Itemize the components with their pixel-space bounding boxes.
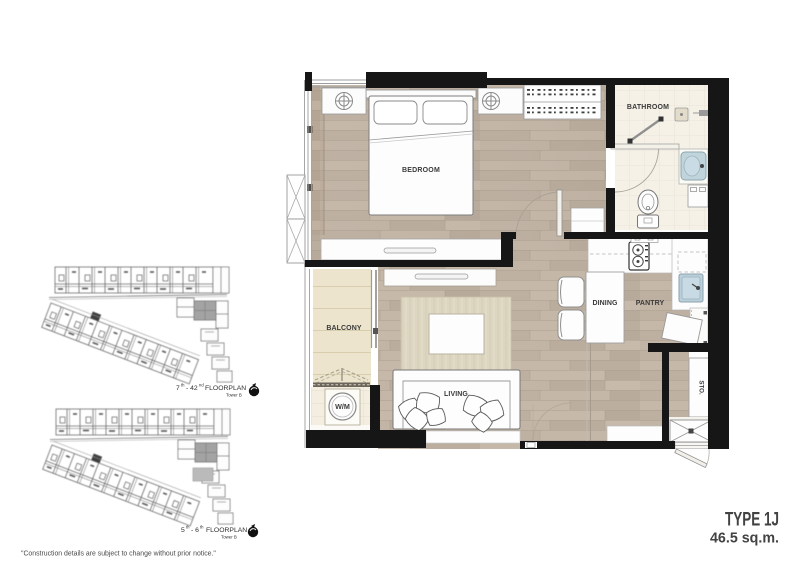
svg-text:5: 5 xyxy=(181,527,185,534)
svg-text:- 6: - 6 xyxy=(191,527,199,534)
svg-text:PANTRY: PANTRY xyxy=(636,300,665,307)
svg-text:W/M: W/M xyxy=(335,402,350,411)
svg-text:7: 7 xyxy=(176,385,180,392)
svg-text:BATHROOM: BATHROOM xyxy=(627,104,669,111)
svg-text:STO.: STO. xyxy=(698,380,705,395)
svg-text:FLOORPLAN: FLOORPLAN xyxy=(206,527,247,534)
svg-text:TYPE 1J: TYPE 1J xyxy=(725,510,779,531)
svg-text:"Construction details are subj: "Construction details are subject to cha… xyxy=(21,551,216,558)
svg-text:FLOORPLAN: FLOORPLAN xyxy=(205,385,246,392)
svg-text:nd: nd xyxy=(199,383,204,388)
svg-text:46.5 sq.m.: 46.5 sq.m. xyxy=(710,530,779,547)
svg-text:Tower B: Tower B xyxy=(221,535,237,540)
svg-text:Tower B: Tower B xyxy=(226,393,242,398)
svg-text:BEDROOM: BEDROOM xyxy=(402,167,440,174)
svg-text:LIVING: LIVING xyxy=(444,391,468,398)
svg-text:- 42: - 42 xyxy=(186,385,198,392)
svg-text:DINING: DINING xyxy=(592,300,618,307)
svg-text:BALCONY: BALCONY xyxy=(326,325,362,332)
